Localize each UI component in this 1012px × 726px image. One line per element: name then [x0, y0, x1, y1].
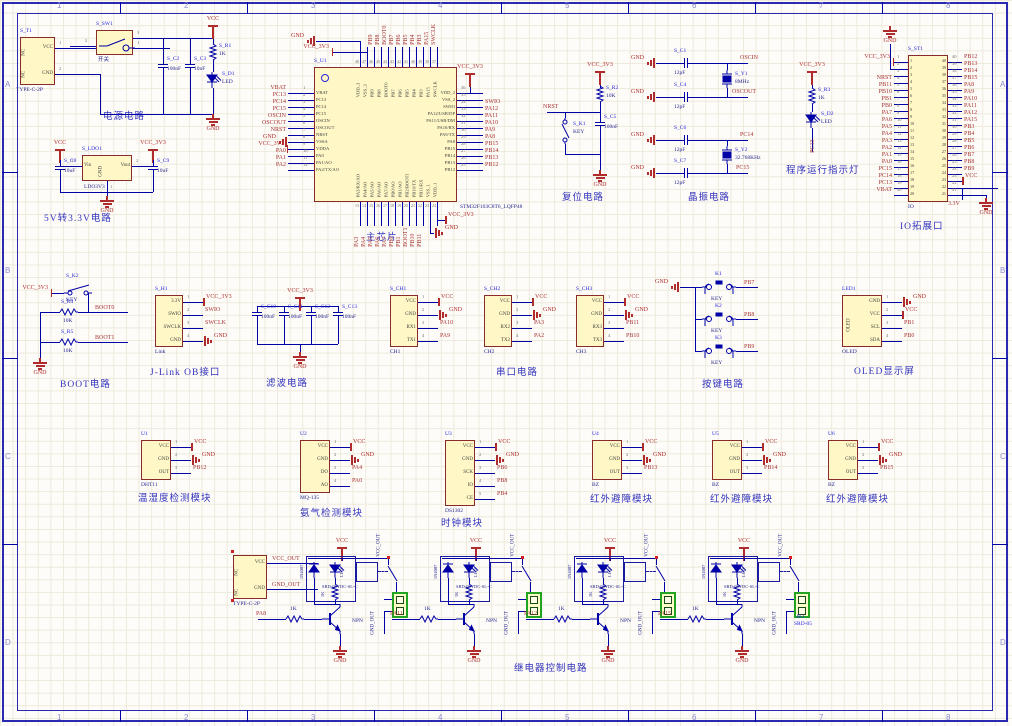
wire[interactable]: [288, 149, 314, 150]
wire[interactable]: [40, 342, 60, 343]
wire[interactable]: [518, 611, 519, 634]
wire[interactable]: [695, 319, 702, 320]
wire[interactable]: [475, 460, 495, 461]
wire[interactable]: [288, 135, 314, 136]
relay-coil[interactable]: [624, 562, 646, 582]
wire[interactable]: [40, 312, 60, 313]
ref-designator: S_U1: [314, 58, 327, 64]
gnd-flag-label: GND: [214, 333, 227, 340]
zone-tick: [882, 710, 883, 722]
wire[interactable]: [213, 60, 214, 72]
wire[interactable]: [257, 344, 338, 345]
pin-number: 5: [897, 82, 899, 87]
pin-number: 30: [461, 127, 466, 132]
relay-switch-icon[interactable]: [654, 565, 668, 583]
wire[interactable]: [409, 47, 410, 67]
ref-designator: K2: [715, 303, 722, 309]
wire[interactable]: [858, 473, 878, 474]
wire[interactable]: [288, 142, 314, 143]
wire[interactable]: [409, 202, 410, 226]
wire[interactable]: [183, 341, 203, 342]
gnd-icon: [982, 205, 991, 207]
zone-column-label: 6: [692, 1, 696, 10]
wire[interactable]: [78, 312, 128, 313]
wire[interactable]: [374, 202, 375, 226]
pin-number: 12: [897, 131, 902, 136]
pin-number: 1: [334, 439, 336, 444]
diode-icon[interactable]: [710, 562, 722, 578]
wire[interactable]: [430, 226, 431, 233]
wire[interactable]: [622, 473, 642, 474]
pin-name: RX3: [560, 325, 602, 331]
relay-switch-icon[interactable]: [520, 565, 534, 583]
wire[interactable]: [448, 578, 449, 604]
pin-number: 2: [886, 307, 888, 312]
wire[interactable]: [388, 558, 389, 565]
wire[interactable]: [656, 140, 678, 141]
wire[interactable]: [622, 447, 642, 448]
zone-row-label: A: [1000, 80, 1005, 89]
pin-name: PA4/AO: [363, 182, 368, 198]
push-button-icon[interactable]: [64, 282, 92, 298]
part-value: 1K: [692, 606, 699, 612]
wire[interactable]: [708, 619, 724, 620]
wire[interactable]: [798, 582, 799, 592]
wire[interactable]: [656, 558, 657, 565]
wire[interactable]: [430, 47, 431, 67]
pin-number: 4: [422, 333, 424, 338]
wire[interactable]: [437, 202, 438, 226]
pin-name: VSSA: [316, 139, 328, 144]
wire[interactable]: [962, 188, 998, 189]
wire[interactable]: [280, 619, 286, 620]
wire[interactable]: [882, 302, 902, 303]
gnd-flag-label: GND: [614, 165, 644, 172]
power-net-label: VCC_3V3: [448, 212, 474, 219]
net-label: PA10: [485, 120, 498, 127]
pin-name: PB3: [419, 90, 424, 98]
wire[interactable]: [475, 486, 495, 487]
push-button-icon[interactable]: [702, 344, 736, 360]
wire[interactable]: [736, 319, 758, 320]
relay-coil[interactable]: [356, 562, 378, 582]
wire[interactable]: [600, 102, 601, 116]
wire[interactable]: [374, 47, 375, 67]
wire[interactable]: [604, 328, 624, 329]
relay-coil[interactable]: [490, 562, 512, 582]
wire[interactable]: [81, 74, 100, 75]
junction-dot: [387, 556, 390, 559]
npn-transistor-icon[interactable]: [724, 604, 746, 634]
wire[interactable]: [423, 202, 424, 226]
wire[interactable]: [316, 41, 360, 42]
wire[interactable]: [622, 460, 642, 461]
wire[interactable]: [414, 619, 420, 620]
wire[interactable]: [288, 114, 314, 115]
wire[interactable]: [367, 202, 368, 226]
pin-number: 17: [383, 204, 387, 209]
push-button-icon[interactable]: [557, 118, 573, 144]
gnd-icon: [882, 457, 884, 463]
wire[interactable]: [437, 47, 438, 67]
wire[interactable]: [512, 328, 532, 329]
wire[interactable]: [790, 558, 791, 565]
section-title: OLED显示屏: [854, 367, 915, 378]
wire[interactable]: [257, 322, 258, 344]
diode-icon[interactable]: [308, 562, 320, 578]
wire[interactable]: [604, 341, 624, 342]
wire[interactable]: [582, 578, 583, 604]
wire[interactable]: [163, 38, 164, 58]
wire[interactable]: [384, 611, 385, 634]
wire[interactable]: [330, 473, 350, 474]
wire[interactable]: [548, 619, 554, 620]
wire[interactable]: [858, 460, 878, 461]
wire[interactable]: [727, 88, 728, 97]
crystal-icon[interactable]: [721, 70, 733, 88]
relay-coil[interactable]: [758, 562, 780, 582]
wire[interactable]: [381, 202, 382, 226]
wire[interactable]: [858, 447, 878, 448]
wire[interactable]: [572, 619, 574, 620]
wire[interactable]: [338, 322, 339, 344]
pin-name: VCC: [814, 444, 856, 450]
wire[interactable]: [526, 619, 548, 620]
wire[interactable]: [716, 578, 717, 604]
wire[interactable]: [474, 634, 475, 646]
wire[interactable]: [402, 202, 403, 226]
wire[interactable]: [52, 293, 64, 294]
pin-name: 40: [904, 59, 946, 64]
wire[interactable]: [81, 48, 96, 49]
net-label: BOOT0: [95, 305, 114, 312]
wire[interactable]: [736, 351, 758, 352]
wire[interactable]: [600, 154, 601, 170]
npn-transistor-icon[interactable]: [322, 604, 344, 634]
vcc-flag-label: VCC: [446, 538, 506, 545]
junction-dot: [231, 599, 234, 602]
wire[interactable]: [727, 63, 728, 70]
npn-transistor-icon[interactable]: [590, 604, 612, 634]
wire[interactable]: [267, 563, 285, 564]
wire[interactable]: [267, 589, 285, 590]
pin-name: 3.3V: [139, 299, 181, 305]
wire[interactable]: [78, 342, 128, 343]
net-label: BOOT1: [95, 335, 114, 342]
ref-designator: U4: [592, 431, 599, 437]
relay-switch-icon[interactable]: [386, 565, 400, 583]
wire[interactable]: [786, 611, 794, 612]
push-button-icon[interactable]: [702, 280, 736, 296]
pin-name: TX1: [374, 338, 416, 344]
wire[interactable]: [890, 44, 891, 69]
part-value: 12pF: [674, 104, 685, 110]
wire[interactable]: [418, 315, 438, 316]
wire[interactable]: [330, 447, 350, 448]
wire[interactable]: [55, 48, 81, 49]
wire[interactable]: [565, 144, 566, 154]
wire[interactable]: [330, 460, 350, 461]
wire[interactable]: [133, 48, 159, 49]
diode-icon[interactable]: [442, 562, 454, 578]
wire[interactable]: [183, 302, 203, 303]
wire[interactable]: [600, 132, 601, 154]
wire[interactable]: [786, 599, 794, 600]
wire[interactable]: [163, 74, 164, 114]
wire[interactable]: [547, 112, 600, 113]
wire[interactable]: [360, 47, 361, 67]
wire[interactable]: [742, 460, 762, 461]
gnd-icon: [36, 365, 45, 367]
wire[interactable]: [159, 48, 170, 49]
wire[interactable]: [171, 460, 191, 461]
wire[interactable]: [706, 619, 708, 620]
wire[interactable]: [392, 619, 414, 620]
wire[interactable]: [656, 97, 678, 98]
npn-transistor-icon[interactable]: [456, 604, 478, 634]
wire[interactable]: [736, 287, 758, 288]
wire[interactable]: [656, 63, 678, 64]
pin-name: SWIO: [139, 312, 181, 318]
relay-switch-icon[interactable]: [788, 565, 802, 583]
wire[interactable]: [171, 473, 191, 474]
resistor-icon[interactable]: [688, 615, 706, 623]
wire[interactable]: [288, 121, 314, 122]
wire[interactable]: [438, 619, 440, 620]
wire[interactable]: [680, 287, 695, 288]
wire[interactable]: [153, 176, 154, 192]
wire[interactable]: [604, 302, 624, 303]
gnd-icon: [596, 177, 605, 179]
wire[interactable]: [423, 47, 424, 67]
led-icon[interactable]: [205, 72, 221, 88]
wire[interactable]: [288, 100, 314, 101]
wire[interactable]: [333, 52, 367, 53]
wire[interactable]: [682, 619, 688, 620]
wire[interactable]: [360, 202, 361, 226]
led-icon[interactable]: [804, 112, 820, 128]
wire[interactable]: [742, 473, 762, 474]
wire[interactable]: [694, 63, 748, 64]
wire[interactable]: [664, 582, 665, 592]
wire[interactable]: [656, 173, 678, 174]
gnd-icon: [650, 170, 652, 176]
wire[interactable]: [695, 351, 702, 352]
ref-designator: S_ST1: [908, 46, 923, 52]
net-label: PB7: [389, 35, 396, 45]
wire[interactable]: [395, 47, 396, 67]
pin-name: 34: [904, 101, 946, 106]
wire[interactable]: [60, 176, 61, 192]
wire[interactable]: [475, 447, 495, 448]
wire[interactable]: [695, 287, 702, 288]
wire[interactable]: [314, 578, 315, 604]
wire[interactable]: [742, 634, 743, 646]
gnd-icon: [738, 653, 747, 655]
wire[interactable]: [288, 128, 314, 129]
wire[interactable]: [416, 202, 417, 226]
wire[interactable]: [288, 156, 314, 157]
wire[interactable]: [288, 93, 314, 94]
pin-number: 1: [626, 439, 628, 444]
wire[interactable]: [742, 447, 762, 448]
wire[interactable]: [786, 611, 787, 634]
gnd-icon: [438, 230, 440, 236]
wire[interactable]: [416, 47, 417, 67]
resistor-icon[interactable]: [596, 86, 604, 102]
wire[interactable]: [213, 88, 214, 114]
wire[interactable]: [418, 302, 438, 303]
wire[interactable]: [418, 328, 438, 329]
wire[interactable]: [882, 341, 902, 342]
wire[interactable]: [388, 47, 389, 67]
resistor-icon[interactable]: [554, 615, 572, 623]
gnd-icon: [533, 310, 535, 320]
wire[interactable]: [402, 47, 403, 67]
net-label: PA2: [226, 162, 286, 169]
wire[interactable]: [396, 582, 397, 592]
wire[interactable]: [288, 163, 314, 164]
wire[interactable]: [574, 619, 590, 620]
wire[interactable]: [418, 341, 438, 342]
power-net-label: VCC: [645, 439, 657, 446]
wire[interactable]: [388, 202, 389, 226]
wire[interactable]: [457, 170, 483, 171]
wire[interactable]: [330, 486, 350, 487]
resistor-icon[interactable]: [60, 308, 78, 316]
wire[interactable]: [367, 47, 368, 67]
wire[interactable]: [190, 74, 191, 114]
wire[interactable]: [660, 619, 682, 620]
gnd-icon: [650, 60, 652, 66]
pin-name: SWCLK: [433, 82, 438, 98]
wire[interactable]: [40, 312, 41, 358]
wire[interactable]: [604, 315, 624, 316]
wire[interactable]: [694, 173, 748, 174]
crystal-icon[interactable]: [721, 146, 733, 164]
wire[interactable]: [512, 341, 532, 342]
pin-number: 28: [952, 138, 957, 143]
wire[interactable]: [430, 233, 434, 234]
wire[interactable]: [694, 97, 748, 98]
wire[interactable]: [381, 47, 382, 67]
pin-number: 40: [411, 60, 415, 65]
wire[interactable]: [475, 499, 495, 500]
gnd-icon: [906, 299, 908, 305]
wire[interactable]: [284, 322, 285, 344]
wire[interactable]: [395, 202, 396, 226]
toggle-switch-icon[interactable]: [99, 36, 135, 56]
wire[interactable]: [565, 154, 600, 155]
wire[interactable]: [882, 315, 902, 316]
wire[interactable]: [306, 619, 322, 620]
wire[interactable]: [340, 634, 341, 646]
wire[interactable]: [512, 302, 532, 303]
wire[interactable]: [437, 220, 445, 221]
wire[interactable]: [311, 322, 312, 344]
pin-name: PA0: [316, 153, 324, 158]
pin-name: BOOT0: [384, 83, 389, 98]
wire[interactable]: [522, 558, 523, 565]
wire[interactable]: [882, 328, 902, 329]
wire[interactable]: [70, 46, 96, 47]
wire[interactable]: [962, 195, 986, 196]
wire[interactable]: [288, 107, 314, 108]
wire[interactable]: [100, 114, 213, 115]
wire[interactable]: [55, 74, 81, 75]
resistor-icon[interactable]: [286, 615, 304, 623]
wire[interactable]: [190, 38, 191, 58]
net-label: PA1: [226, 155, 286, 162]
wire[interactable]: [258, 619, 280, 620]
net-label: PA15: [424, 32, 431, 45]
wire[interactable]: [107, 181, 108, 196]
part-value: LED: [339, 568, 344, 577]
wire[interactable]: [171, 447, 191, 448]
wire[interactable]: [440, 619, 456, 620]
wire[interactable]: [304, 619, 306, 620]
diode-icon[interactable]: [576, 562, 588, 578]
wire[interactable]: [948, 195, 962, 196]
net-label: PB14: [764, 465, 777, 472]
push-button-icon[interactable]: [702, 312, 736, 328]
wire[interactable]: [133, 38, 159, 39]
wire[interactable]: [100, 74, 101, 114]
wire[interactable]: [652, 611, 653, 634]
section-title: 时钟模块: [441, 519, 483, 530]
part-value: LED: [607, 568, 612, 577]
wire[interactable]: [384, 599, 392, 600]
pin-name: TX2: [468, 338, 510, 344]
wire[interactable]: [430, 202, 431, 226]
ref-designator: S_K1: [573, 121, 586, 127]
wire[interactable]: [183, 328, 203, 329]
wire[interactable]: [694, 140, 748, 141]
pin-name: 37: [904, 80, 946, 85]
net-label: GND: [98, 166, 104, 177]
pin-name: VCC: [578, 444, 620, 450]
part-name: NPN: [620, 618, 631, 624]
wire[interactable]: [475, 473, 495, 474]
power-net-label: VCC_3V3: [830, 54, 890, 61]
part-value: 100nF: [167, 66, 181, 72]
resistor-icon[interactable]: [808, 88, 816, 104]
wire[interactable]: [727, 164, 728, 173]
resistor-icon[interactable]: [420, 615, 438, 623]
wire[interactable]: [512, 315, 532, 316]
wire[interactable]: [518, 599, 526, 600]
pin-number: 48: [355, 60, 359, 65]
pin-name: VCC: [560, 299, 602, 305]
net-label: 1: [110, 184, 112, 189]
net-label: PA12: [485, 106, 498, 113]
wire[interactable]: [183, 315, 203, 316]
resistor-icon[interactable]: [209, 44, 217, 60]
part-name: SRD-05VDC-SL-C: [590, 584, 626, 589]
wire[interactable]: [812, 104, 813, 112]
resistor-icon[interactable]: [60, 338, 78, 346]
pin-number: 23: [952, 173, 957, 178]
wire[interactable]: [652, 599, 660, 600]
wire[interactable]: [288, 170, 314, 171]
wire[interactable]: [530, 582, 531, 592]
wire[interactable]: [608, 634, 609, 646]
gnd-icon: [647, 96, 649, 99]
pin-name: VCC: [223, 560, 265, 566]
wire[interactable]: [300, 344, 301, 352]
wire[interactable]: [159, 38, 213, 39]
wire[interactable]: [962, 188, 963, 200]
